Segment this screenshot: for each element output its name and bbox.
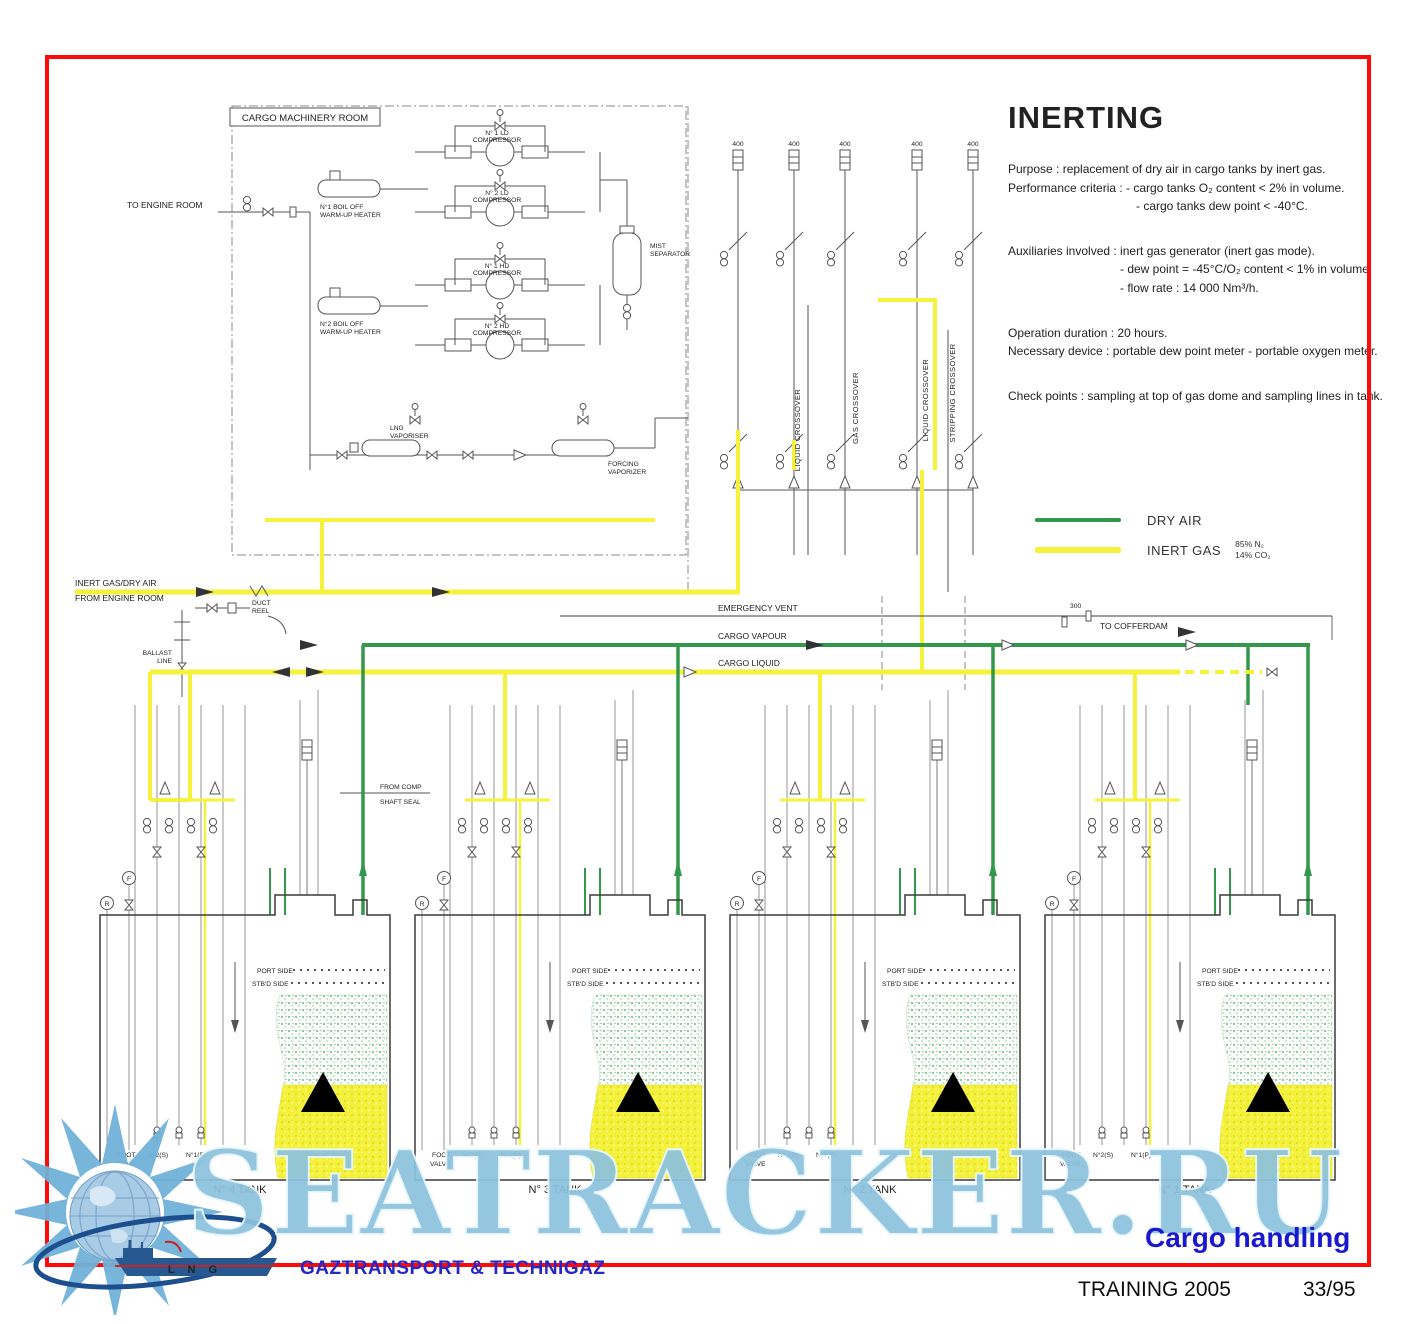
company-name: GAZTRANSPORT & TECHNIGAZ [300,1258,605,1280]
seatracker-logo: L N G [15,1100,325,1315]
training-label: TRAINING 2005 [1078,1278,1231,1302]
page-number: 33/95 [1303,1278,1356,1302]
red-frame [45,55,1371,1267]
lng-ship-text: L N G [168,1264,222,1276]
globe-icon [70,1171,160,1261]
slide-subject: Cargo handling [1145,1222,1350,1254]
